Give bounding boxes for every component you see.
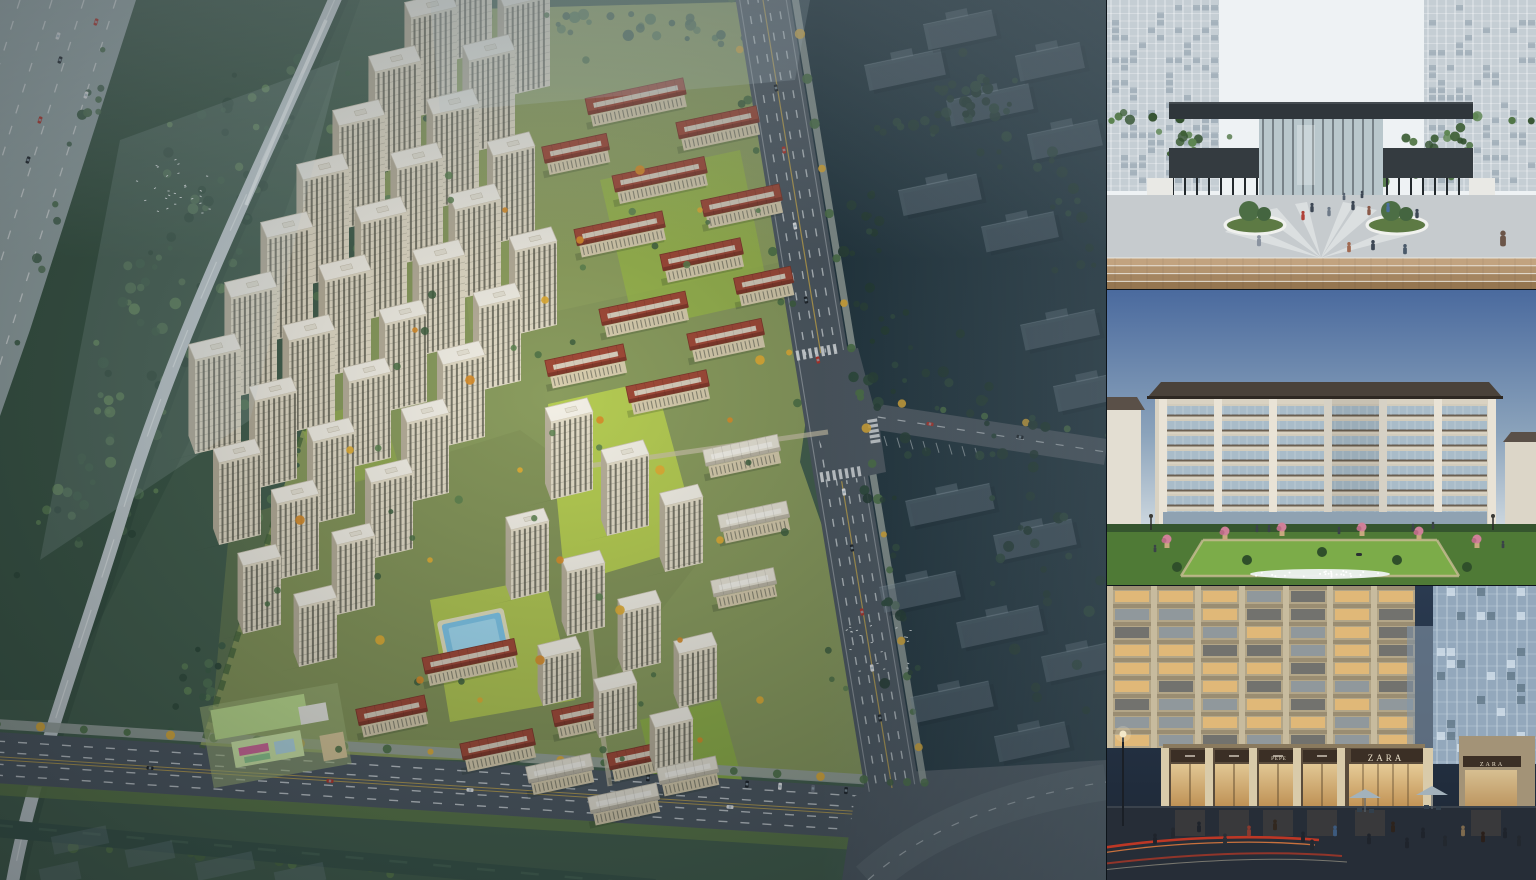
retail-street-image: PEPE ZARA ZARA [1107, 586, 1536, 880]
entrance-plaza-image [1107, 0, 1536, 289]
garden-residence-svg [1107, 290, 1536, 585]
architectural-renderings-collage: PEPE ZARA ZARA [0, 0, 1536, 880]
entrance-plaza-svg [1107, 0, 1536, 289]
shop-sign-pepe: PEPE [1271, 757, 1287, 762]
street-scene [1107, 586, 1536, 880]
retail-street-svg: PEPE ZARA ZARA [1107, 586, 1536, 880]
shop-sign-zara-main: ZARA [1368, 753, 1405, 763]
garden-residence-image [1107, 290, 1536, 585]
garden-scene [1107, 290, 1536, 585]
mist-overlays [0, 0, 1106, 880]
aerial-scene [0, 0, 1106, 880]
aerial-masterplan-svg [0, 0, 1106, 880]
aerial-masterplan-image [0, 0, 1106, 880]
plaza-scene [1107, 0, 1536, 289]
shop-sign-zara-annex: ZARA [1480, 762, 1504, 768]
